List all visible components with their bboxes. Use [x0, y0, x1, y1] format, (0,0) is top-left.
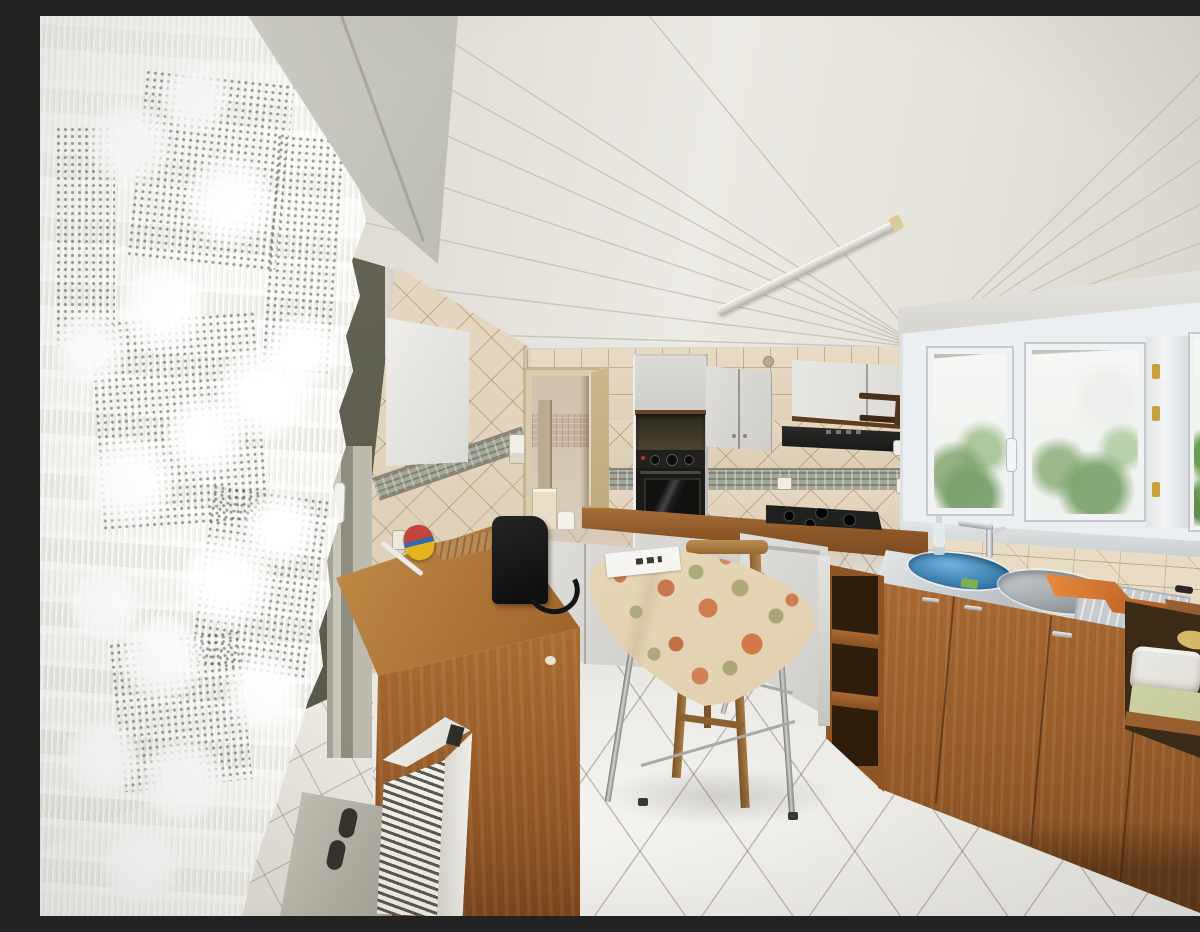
window-mullion — [1146, 336, 1188, 528]
lace-flower — [140, 736, 225, 826]
lace-flower — [90, 96, 170, 191]
power-outlet — [777, 477, 792, 490]
window-glass — [934, 354, 1006, 508]
table-shadow — [600, 766, 840, 826]
soap-bottle — [933, 522, 945, 555]
oven-knob — [684, 455, 694, 465]
window-pane-far — [1188, 332, 1200, 532]
lace-flower — [100, 826, 180, 906]
oven-niche — [636, 414, 705, 452]
window-glass — [1032, 350, 1138, 514]
window-hinge — [1152, 406, 1160, 421]
oven-knob — [650, 455, 660, 465]
window-casement-right — [1024, 342, 1146, 522]
kitchen-photograph: Daylit empty kitchen photograph: white p… — [40, 16, 1200, 916]
kitchen-window — [900, 296, 1200, 558]
cabinet-door-gap — [738, 366, 740, 452]
shelf-interior — [832, 576, 878, 766]
lace-flower — [160, 61, 230, 136]
oven-top-flap — [635, 356, 706, 415]
lace-flower — [55, 306, 125, 391]
radiator — [371, 712, 475, 916]
straw-item — [1176, 628, 1200, 652]
cabinet-knob — [743, 434, 747, 438]
lace-flower — [85, 431, 175, 531]
dishwasher-side-panel — [818, 556, 830, 726]
lace-flower — [270, 306, 335, 396]
chair-mid-rail — [692, 571, 764, 584]
board-hole — [337, 807, 359, 840]
radiator-fins — [377, 756, 447, 916]
lace-flower — [165, 391, 245, 481]
lace-flower — [120, 261, 205, 356]
wall-vent — [763, 356, 774, 367]
lace-flower — [225, 651, 300, 736]
upper-cabinets — [706, 366, 772, 452]
drawer-wood-handle — [608, 600, 736, 619]
hood-controls — [826, 430, 862, 434]
booklet-marks — [636, 556, 662, 565]
garden-greenery — [1194, 338, 1200, 526]
towel-bar — [857, 393, 903, 432]
oven-handle — [640, 471, 701, 474]
lace-flower — [70, 566, 140, 646]
chair-top-rail — [686, 540, 768, 554]
oven-knob — [666, 454, 678, 466]
cabinet-gap — [584, 544, 586, 664]
lace-flower — [245, 486, 315, 571]
lace-flower — [65, 716, 140, 801]
window-hinge — [1152, 364, 1160, 379]
wall-panel — [384, 316, 472, 468]
cabinet-knob — [732, 434, 736, 438]
window-hinge — [1152, 482, 1160, 497]
window-handle — [1006, 438, 1017, 472]
oven-indicator — [641, 456, 645, 460]
oven-control-panel — [636, 450, 705, 468]
board-hole — [325, 839, 347, 872]
sideboard-knob — [544, 655, 556, 665]
lace-flower — [185, 151, 275, 251]
soap-pump — [936, 516, 942, 523]
window-casement-left — [926, 346, 1014, 516]
